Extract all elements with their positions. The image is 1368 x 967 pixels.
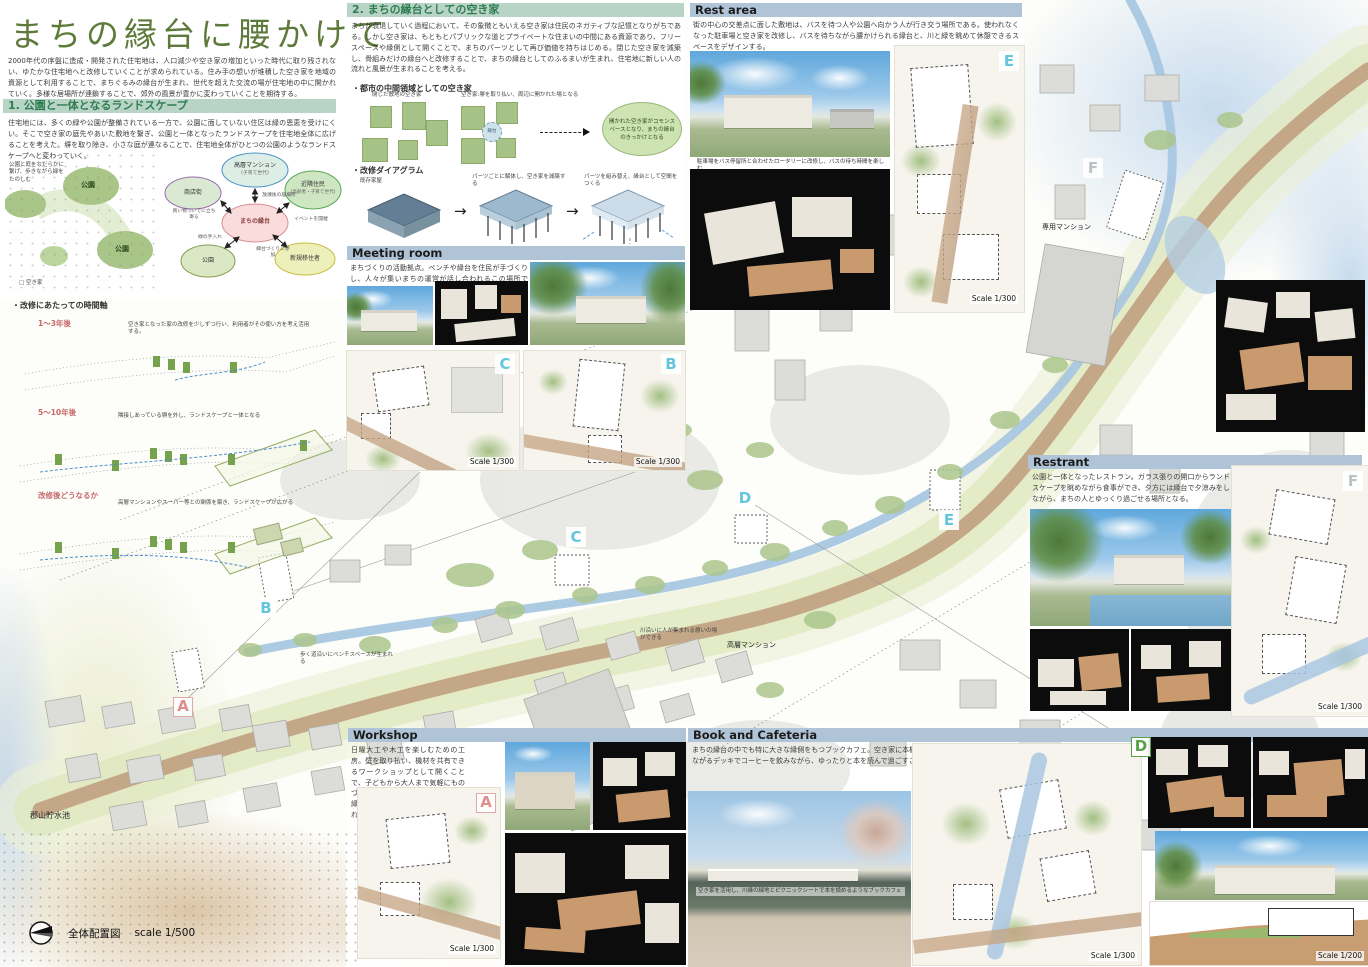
workshop-header: Workshop	[348, 728, 686, 742]
plan-book: Scale 1/300	[913, 744, 1141, 965]
vacant-label-1: 閉じた敷地の空き家	[372, 92, 452, 99]
label-reservoir: 郡山貯水池	[30, 810, 70, 821]
plan-legend: 全体配置図 scale 1/500	[28, 920, 195, 946]
renovation-label-1: 既存家屋	[360, 178, 420, 185]
house-reduced	[468, 188, 564, 244]
phase2-sketch	[20, 424, 335, 492]
bubble-edge-2: イベントを開催	[291, 217, 331, 223]
plan-f-scale: Scale 1/300	[1316, 702, 1364, 712]
label-tower-mansion: 高層マンション	[727, 640, 776, 650]
pool	[1090, 595, 1232, 626]
vacant-house-diagram: 閉じた敷地の空き家 空き家:塀を取り払い、周辺に開かれた場となる 縁台 開かれた…	[358, 94, 684, 166]
book-caption: 空き家を活用し、川縁の緑地とピクニックシートで本を読めるようなブックカフェ	[696, 887, 905, 896]
note-river: 川沿いに人が集まれる憩いの場ができる	[640, 628, 718, 643]
plan-a-scale: Scale 1/300	[448, 944, 496, 954]
renovation-label-3: パーツを組み替え、縁台として空間をつくる	[584, 174, 679, 189]
plan-e: E Scale 1/300	[895, 46, 1024, 312]
plan-c: C Scale 1/300	[347, 351, 519, 470]
restrant-body: 公園と一体となったレストラン。ガラス張りの開口からランドスケープを眺めながら食事…	[1032, 472, 1230, 505]
bubble-edge-1: 放課後の居場所	[259, 193, 299, 199]
phase2-label: 5〜10年後	[38, 407, 76, 418]
meeting-render-1	[347, 286, 433, 345]
vacant-label-2: 空き家:塀を取り払い、周辺に開かれた場となる	[461, 92, 581, 99]
plan-b-letter: B	[661, 354, 681, 374]
map-marker-e: E	[939, 510, 959, 530]
plan-a-letter: A	[476, 793, 496, 813]
plan-e-scale: Scale 1/300	[970, 294, 1018, 304]
house-opened	[580, 188, 676, 244]
meeting-model-photo	[435, 281, 528, 345]
workshop-model-photo	[593, 742, 686, 830]
plan-book-scale: Scale 1/300	[1089, 951, 1137, 961]
bubble-top: 高層マンション(子育て世代)	[222, 162, 288, 177]
bubble-edge-4: 縁台づくりに参加	[255, 247, 291, 258]
renovation-diagram: 既存家屋 パーツごとに解体し、空き家を減築する パーツを組み替え、縁台として空間…	[352, 176, 682, 246]
poster-title: まちの縁台に腰かけて	[10, 8, 390, 56]
restrant-render	[1030, 509, 1232, 626]
intro-text: 2000年代の序盤に造成・開発された住宅地は、人口減少や空き家の増加といった時代…	[8, 56, 336, 99]
renovation-arrow-2: →	[566, 202, 579, 220]
section2-body: まちが衰退していく過程において、その象徴ともいえる空き家は住民のネガティブな記憶…	[351, 21, 681, 75]
timeline-heading: ・改修にあたっての時間軸	[12, 300, 108, 311]
north-arrow-icon	[28, 920, 54, 946]
house-existing	[356, 188, 452, 244]
terrain-dot-texture	[0, 830, 360, 967]
workshop-render	[505, 742, 590, 830]
phase3-note: 高層マンションやスーパー等との関係を築き、ランドスケープが広がる	[118, 500, 318, 507]
meeting-header: Meeting room	[347, 246, 685, 260]
phase1-label: 1〜3年後	[38, 318, 71, 329]
label-mansion: 専用マンション	[1042, 222, 1091, 232]
bubble-left: 商店街	[171, 189, 215, 196]
plan-c-scale: Scale 1/300	[468, 457, 516, 467]
map-marker-d: D	[735, 488, 755, 508]
vacant-result: 開かれた空き家がコモンスペースとなり、まちの縁台のきっかけとなる	[602, 102, 682, 156]
presentation-board: 郡山貯水池 高層マンション 専用マンション 川沿いに人が集まれる憩いの場ができる…	[0, 0, 1368, 967]
workshop-model-photo-2	[505, 833, 686, 965]
book-render: 空き家を活用し、川縁の緑地とピクニックシートで本を読めるようなブックカフェ	[688, 791, 911, 967]
plan-f: F Scale 1/300	[1232, 466, 1368, 716]
park-diagram: 公園と庭をなだらかに繋げ、歩きながら緑をたのしむ 公園 公園 □ 空き家	[5, 150, 163, 292]
restrant-model-1	[1030, 629, 1129, 711]
phase2-note: 隣接しあっている塀を外し、ランドスケープと一体となる	[118, 413, 328, 420]
map-marker-f: F	[1083, 158, 1103, 178]
note-bench: 歩く道沿いにベンチスペースが生まれる	[300, 652, 395, 667]
book-render-strip	[1155, 831, 1368, 900]
restrant-model-2	[1131, 629, 1231, 711]
plan-c-letter: C	[495, 354, 515, 374]
renovation-label-2: パーツごとに解体し、空き家を減築する	[472, 174, 567, 189]
bubble-edge-0: 買い物ついでに立ち寄る	[171, 209, 217, 220]
meeting-render-2	[530, 262, 685, 345]
rest-model-photo	[690, 169, 890, 310]
rest-header: Rest area	[690, 3, 1022, 17]
phase1-sketch	[25, 334, 335, 400]
phase3-label: 改修後どうなるか	[38, 490, 98, 501]
overview-model-photo	[1216, 280, 1365, 432]
bubble-center: まちの縁台	[222, 218, 288, 225]
plan-f-letter: F	[1343, 471, 1363, 491]
stakeholder-bubble-diagram: 高層マンション(子育て世代) 商店街 近隣住民(高齢者・子育て世代) まちの縁台…	[163, 143, 343, 295]
plan-b-scale: Scale 1/300	[634, 457, 682, 467]
map-marker-c: C	[566, 527, 586, 547]
vacant-core: 縁台	[482, 122, 502, 142]
bubble-edge-3: 緑の手入れ	[193, 235, 227, 241]
map-marker-a: A	[173, 697, 193, 717]
section1-header: 1. 公園と一体となるランドスケープ	[3, 99, 336, 113]
section-scale: Scale 1/200	[1316, 951, 1364, 961]
book-section-drawing: Scale 1/200	[1150, 902, 1368, 965]
book-model-1	[1148, 737, 1251, 828]
bubble-bottom-left: 公園	[186, 257, 230, 264]
section2-header: 2. まちの縁台としての空き家	[347, 3, 684, 17]
vacant-arrow	[540, 132, 586, 133]
rest-render	[690, 51, 890, 157]
map-marker-b: B	[256, 598, 276, 618]
plan-a: A Scale 1/300	[358, 788, 500, 958]
plan-e-letter: E	[999, 51, 1019, 71]
legend-name: 全体配置図	[68, 926, 121, 941]
renovation-heading: ・改修ダイアグラム	[352, 165, 423, 176]
legend-scale: scale 1/500	[135, 927, 196, 939]
plan-b: B Scale 1/300	[524, 351, 685, 470]
book-model-2	[1253, 737, 1368, 828]
plan-d-letter: D	[1131, 737, 1151, 757]
renovation-arrow-1: →	[454, 202, 467, 220]
phase3-sketch	[20, 512, 335, 580]
